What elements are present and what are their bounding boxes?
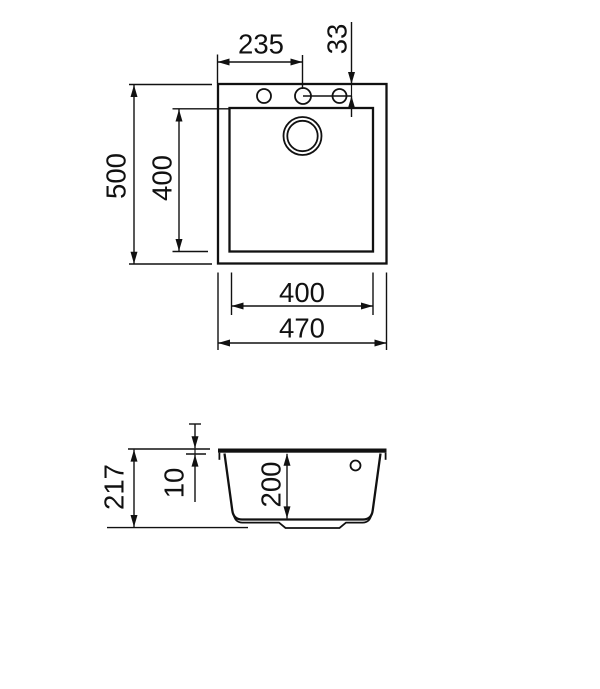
dim-label-400-depth: 400: [147, 155, 178, 201]
dim-label-470: 470: [279, 313, 325, 344]
drain-circle-outer: [284, 117, 322, 155]
dim-label-200: 200: [256, 462, 287, 508]
dim-label-10: 10: [159, 468, 190, 499]
dim-label-33: 33: [322, 24, 353, 55]
faucet-hole-left: [257, 89, 271, 103]
dim-label-235: 235: [238, 29, 284, 60]
dim-label-500: 500: [101, 153, 132, 199]
section-rim-band: [218, 449, 387, 453]
section-bowl-profile: [225, 454, 381, 520]
drain-circle-inner: [287, 121, 317, 151]
top-view-bowl-outline: [230, 108, 374, 252]
drawing-svg: 235 33 500 400 400 470 217 10: [0, 0, 600, 689]
sink-technical-drawing: 235 33 500 400 400 470 217 10: [0, 0, 600, 689]
overflow-hole: [351, 461, 361, 471]
dim-label-217: 217: [99, 464, 130, 510]
top-view-outer-outline: [218, 84, 387, 264]
dim-label-400-width: 400: [279, 277, 325, 308]
section-bottom-profile: [234, 514, 372, 528]
